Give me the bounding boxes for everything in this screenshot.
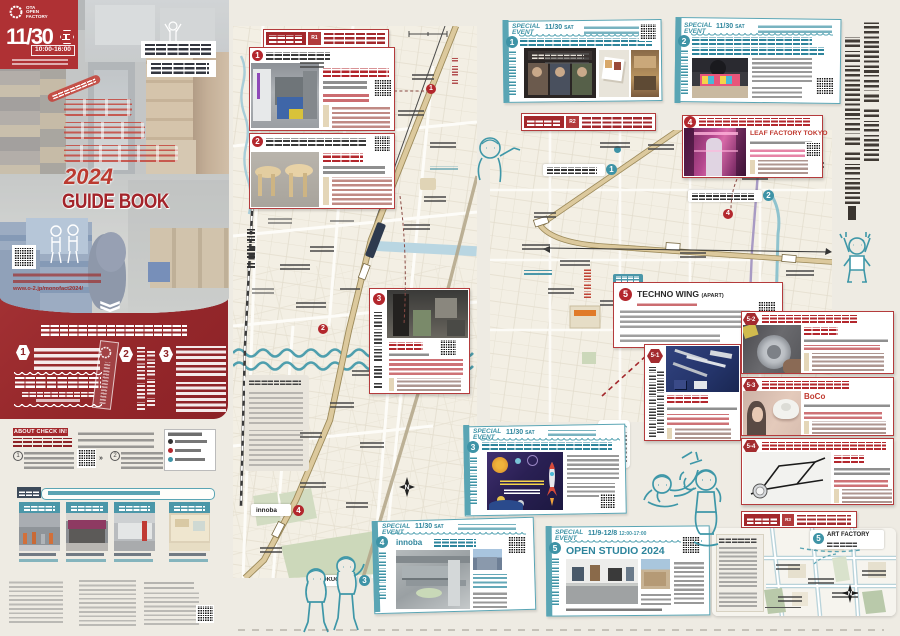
svg-text:N: N [848, 592, 852, 598]
svg-text:N: N [404, 485, 409, 492]
